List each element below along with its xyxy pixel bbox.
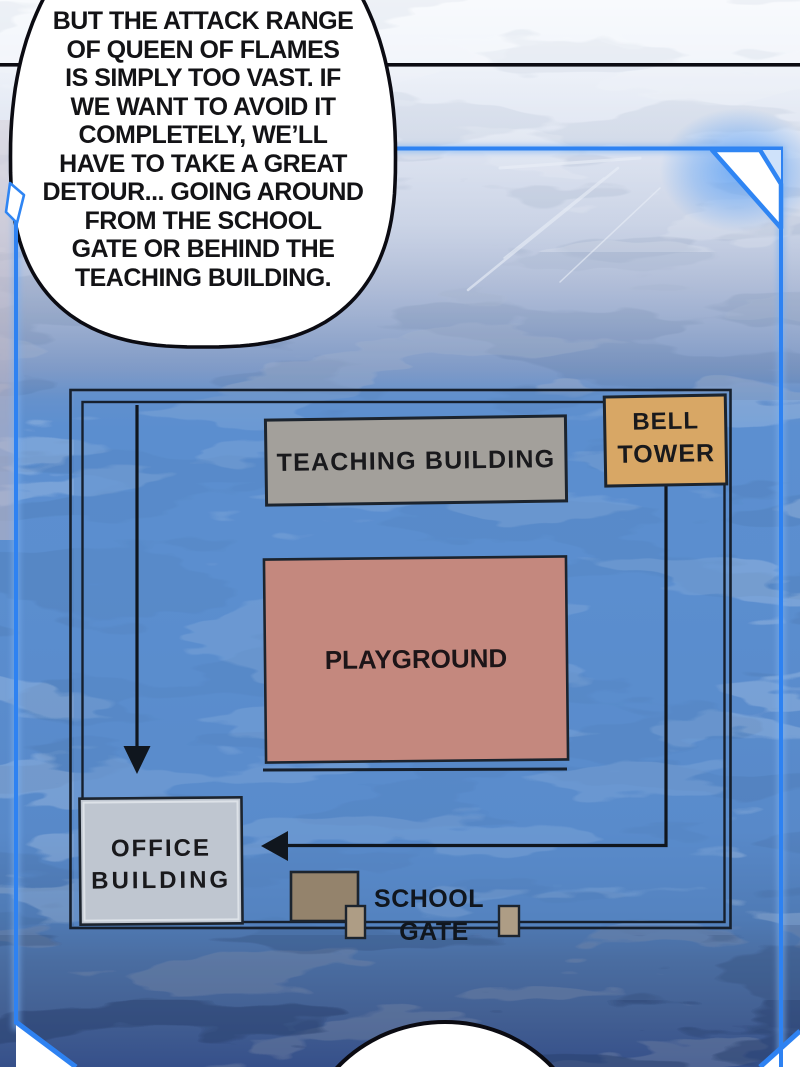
svg-text:GATE: GATE xyxy=(399,918,469,946)
svg-text:TOWER: TOWER xyxy=(617,439,715,469)
svg-text:PLAYGROUND: PLAYGROUND xyxy=(325,643,508,675)
svg-text:BUILDING: BUILDING xyxy=(91,866,231,894)
svg-text:TEACHING BUILDING: TEACHING BUILDING xyxy=(276,445,555,477)
svg-text:BELL: BELL xyxy=(632,407,699,435)
svg-text:SCHOOL: SCHOOL xyxy=(374,885,484,913)
svg-text:OFFICE: OFFICE xyxy=(111,835,211,863)
